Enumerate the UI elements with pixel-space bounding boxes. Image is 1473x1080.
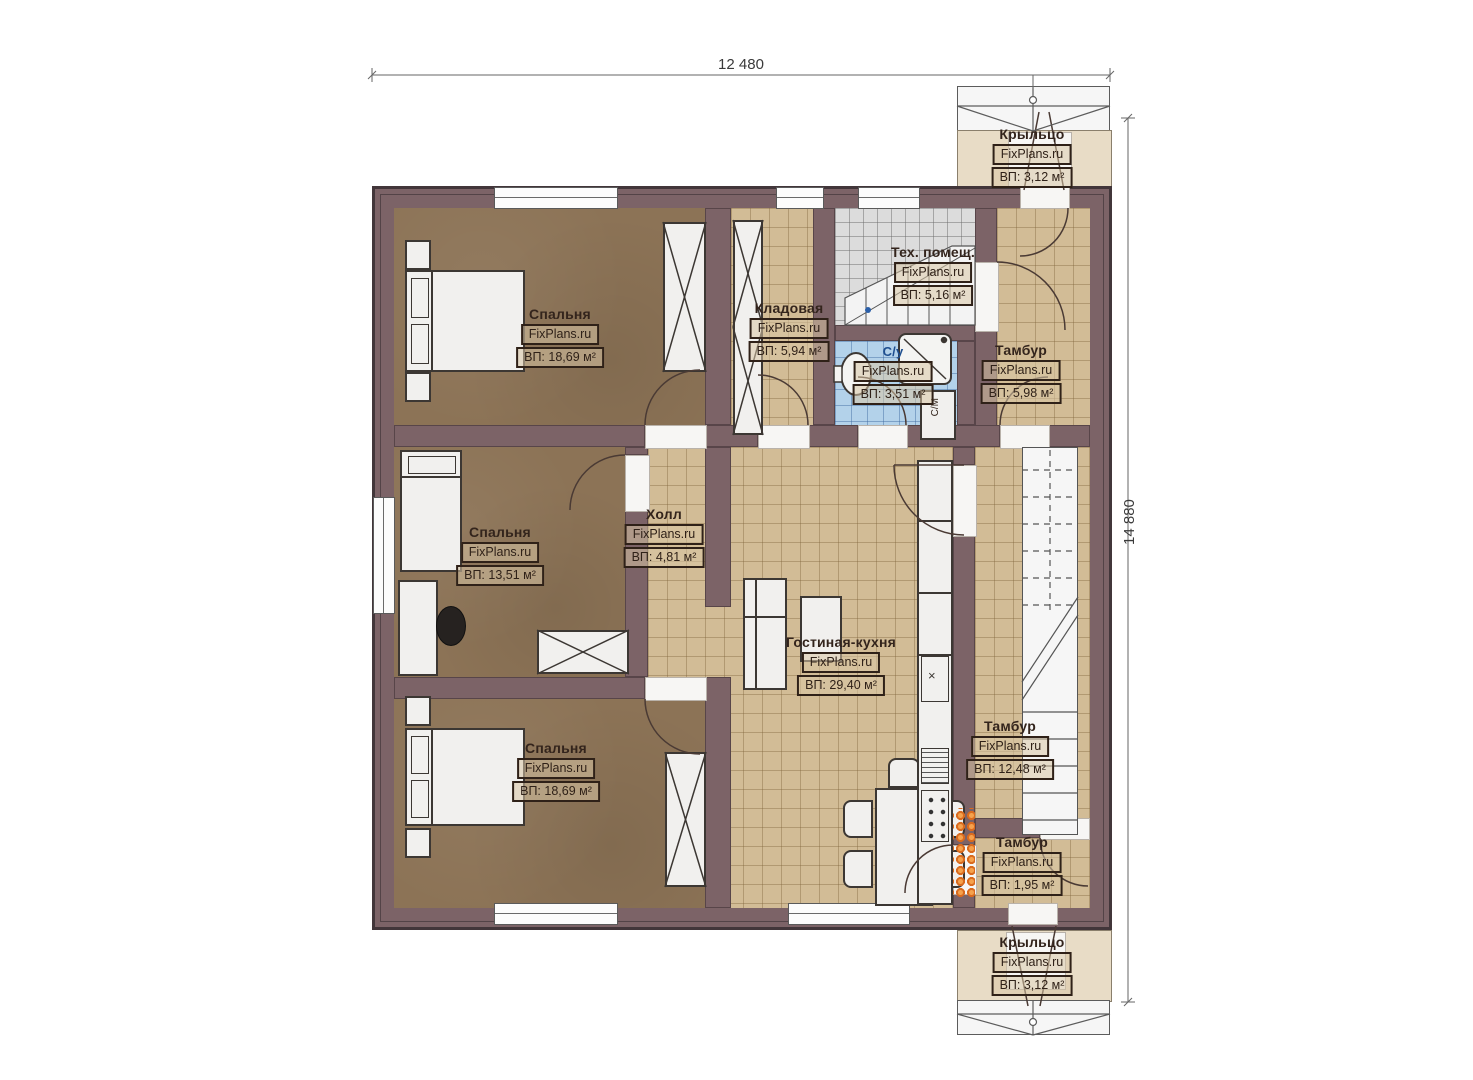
wall	[808, 425, 858, 447]
room-name: Кладовая	[755, 300, 824, 316]
wall	[705, 677, 731, 908]
window	[373, 497, 395, 614]
nightstand	[405, 828, 431, 858]
watermark: FixPlans.ru	[750, 318, 829, 339]
room-area: ВП: 29,40 м²	[797, 675, 885, 696]
wall	[705, 447, 731, 607]
door-opening	[858, 425, 908, 449]
dimension-width: 12 480	[718, 56, 764, 73]
watermark: FixPlans.ru	[854, 361, 933, 382]
watermark: FixPlans.ru	[894, 262, 973, 283]
window	[494, 903, 618, 925]
wardrobe	[663, 222, 706, 372]
room-name: С/у	[883, 344, 904, 359]
stove-burners	[921, 790, 949, 842]
window	[788, 903, 910, 925]
nightstand	[405, 696, 431, 726]
room-area: ВП: 13,51 м²	[456, 565, 544, 586]
room-area: ВП: 12,48 м²	[966, 759, 1054, 780]
room-area: ВП: 5,98 м²	[981, 383, 1062, 404]
entrance-door-top	[1020, 187, 1070, 209]
nightstand	[405, 372, 431, 402]
wall	[394, 677, 645, 699]
room-label-bedroom1: Спальня FixPlans.ru ВП: 18,69 м²	[516, 306, 604, 368]
wall	[1048, 425, 1090, 447]
watermark: FixPlans.ru	[971, 736, 1050, 757]
wall	[957, 341, 975, 425]
desk	[398, 580, 438, 676]
watermark: FixPlans.ru	[625, 524, 704, 545]
door-opening	[645, 425, 707, 449]
watermark: FixPlans.ru	[983, 852, 1062, 873]
room-name: Крыльцо	[999, 934, 1064, 950]
room-label-bathroom: С/у FixPlans.ru ВП: 3,51 м²	[853, 344, 934, 405]
sofa	[743, 578, 787, 690]
room-label-porch-top: Крыльцо FixPlans.ru ВП: 3,12 м²	[992, 126, 1073, 188]
room-name: Спальня	[525, 740, 587, 756]
bed	[400, 450, 462, 572]
watermark: FixPlans.ru	[517, 758, 596, 779]
window	[776, 187, 824, 209]
room-name: Крыльцо	[999, 126, 1064, 142]
wardrobe	[665, 752, 706, 887]
watermark: FixPlans.ru	[461, 542, 540, 563]
dimension-height: 14 880	[1121, 499, 1138, 545]
kitchen-sink-x: ×	[928, 668, 936, 683]
bed	[405, 270, 525, 372]
door-opening	[645, 677, 707, 701]
room-area: ВП: 3,12 м²	[992, 167, 1073, 188]
window	[494, 187, 618, 209]
room-area: ВП: 4,81 м²	[624, 547, 705, 568]
room-area: ВП: 3,12 м²	[992, 975, 1073, 996]
watermark: FixPlans.ru	[993, 952, 1072, 973]
room-label-porch-bottom: Крыльцо FixPlans.ru ВП: 3,12 м²	[992, 934, 1073, 996]
entrance-door-bottom	[1008, 903, 1058, 925]
watermark: FixPlans.ru	[802, 652, 881, 673]
room-label-storage: Кладовая FixPlans.ru ВП: 5,94 м²	[749, 300, 830, 362]
door-opening	[758, 425, 810, 449]
room-name: Тамбур	[984, 718, 1036, 734]
room-name: Холл	[646, 506, 682, 522]
room-area: ВП: 5,94 м²	[749, 341, 830, 362]
room-label-tech-room: Тех. помещ. FixPlans.ru ВП: 5,16 м²	[891, 244, 975, 306]
room-name: Спальня	[469, 524, 531, 540]
watermark: FixPlans.ru	[993, 144, 1072, 165]
porch-bottom-canopy	[957, 1000, 1110, 1035]
room-area: ВП: 1,95 м²	[982, 875, 1063, 896]
bed	[405, 728, 525, 826]
room-name: Спальня	[529, 306, 591, 322]
door-opening	[953, 465, 977, 537]
room-area: ВП: 5,16 м²	[893, 285, 974, 306]
room-name: Тех. помещ.	[891, 244, 975, 260]
radiator	[953, 808, 975, 898]
room-label-tambour-right: Тамбур FixPlans.ru ВП: 12,48 м²	[966, 718, 1054, 780]
floor-plan: 12 480 14 880 Спальня FixPlans.ru ВП: 18…	[0, 0, 1473, 1080]
room-label-hall: Холл FixPlans.ru ВП: 4,81 м²	[624, 506, 705, 568]
door-opening	[1000, 425, 1050, 449]
room-name: Тамбур	[995, 342, 1047, 358]
room-label-tambour-top: Тамбур FixPlans.ru ВП: 5,98 м²	[981, 342, 1062, 404]
room-label-bedroom3: Спальня FixPlans.ru ВП: 18,69 м²	[512, 740, 600, 802]
room-name: Гостиная-кухня	[786, 634, 896, 650]
room-area: ВП: 3,51 м²	[853, 384, 934, 405]
room-area: ВП: 18,69 м²	[512, 781, 600, 802]
window	[858, 187, 920, 209]
room-area: ВП: 18,69 м²	[516, 347, 604, 368]
door-opening	[975, 262, 999, 332]
door-opening	[625, 455, 650, 512]
room-label-living-kitchen: Гостиная-кухня FixPlans.ru ВП: 29,40 м²	[786, 634, 896, 696]
watermark: FixPlans.ru	[982, 360, 1061, 381]
wardrobe	[537, 630, 629, 674]
nightstand	[405, 240, 431, 270]
wall	[953, 447, 975, 465]
desk-chair	[436, 606, 466, 646]
room-name: Тамбур	[996, 834, 1048, 850]
wall	[705, 208, 731, 425]
room-label-tambour-bottom: Тамбур FixPlans.ru ВП: 1,95 м²	[982, 834, 1063, 896]
wall	[394, 425, 645, 447]
chair	[888, 758, 920, 788]
room-label-bedroom2: Спальня FixPlans.ru ВП: 13,51 м²	[456, 524, 544, 586]
watermark: FixPlans.ru	[521, 324, 600, 345]
chair	[843, 800, 873, 838]
dishwasher	[921, 748, 949, 784]
wall	[953, 535, 975, 845]
chair	[843, 850, 873, 888]
